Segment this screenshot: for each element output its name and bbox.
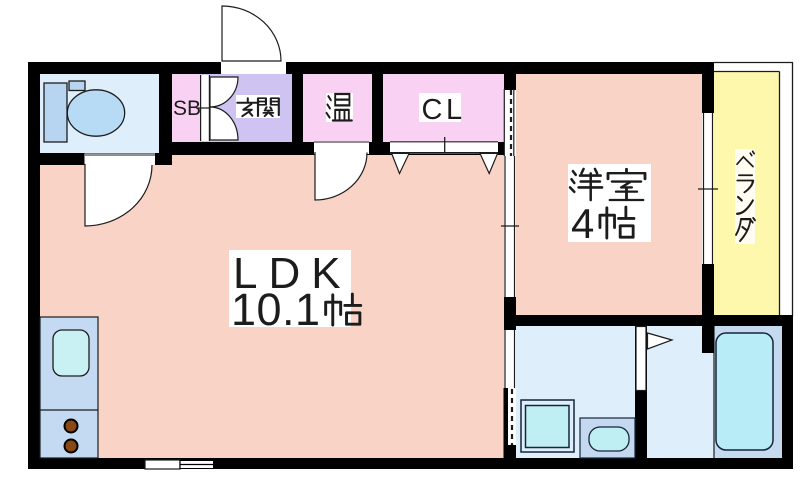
svg-text:CL: CL bbox=[422, 94, 466, 126]
svg-text:SB: SB bbox=[173, 97, 201, 120]
svg-text:4: 4 bbox=[571, 200, 594, 247]
svg-text:10.1: 10.1 bbox=[231, 284, 321, 335]
